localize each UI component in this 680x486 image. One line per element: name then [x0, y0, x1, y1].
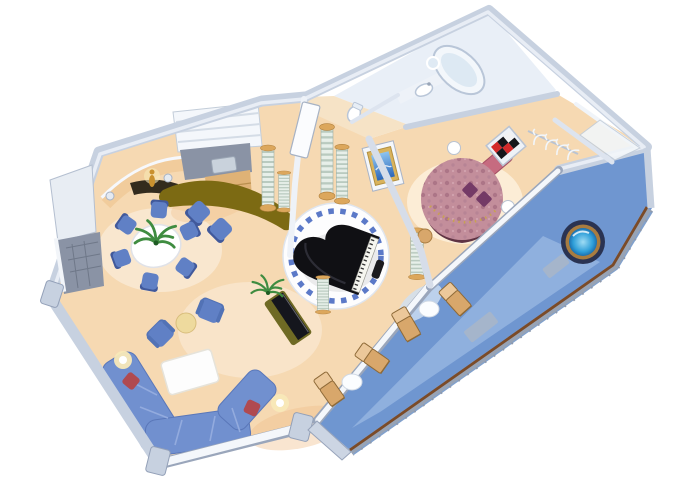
desk-tray: [211, 156, 237, 173]
suite-floorplan-svg: [0, 0, 680, 486]
floor-lamp-core: [276, 399, 284, 407]
floorplan-illustration: [0, 0, 680, 486]
railing-end-wall: [647, 148, 651, 208]
mirror: [427, 57, 439, 69]
nightstand: [448, 142, 461, 155]
floor-lamp-core: [119, 356, 127, 364]
balcony-table: [419, 301, 439, 317]
balcony-table: [342, 374, 362, 390]
entry-door-panel: [50, 165, 96, 242]
side-table: [176, 313, 196, 333]
column: [277, 171, 291, 212]
statue: [149, 170, 155, 188]
ceiling-spotlight: [106, 192, 114, 200]
column: [315, 275, 330, 314]
column: [334, 144, 349, 204]
ceiling-spotlight: [164, 174, 172, 182]
dining-chair: [149, 199, 169, 219]
column: [260, 145, 276, 212]
hot-tub: [561, 220, 605, 264]
column: [319, 124, 335, 200]
faucet: [427, 82, 431, 86]
